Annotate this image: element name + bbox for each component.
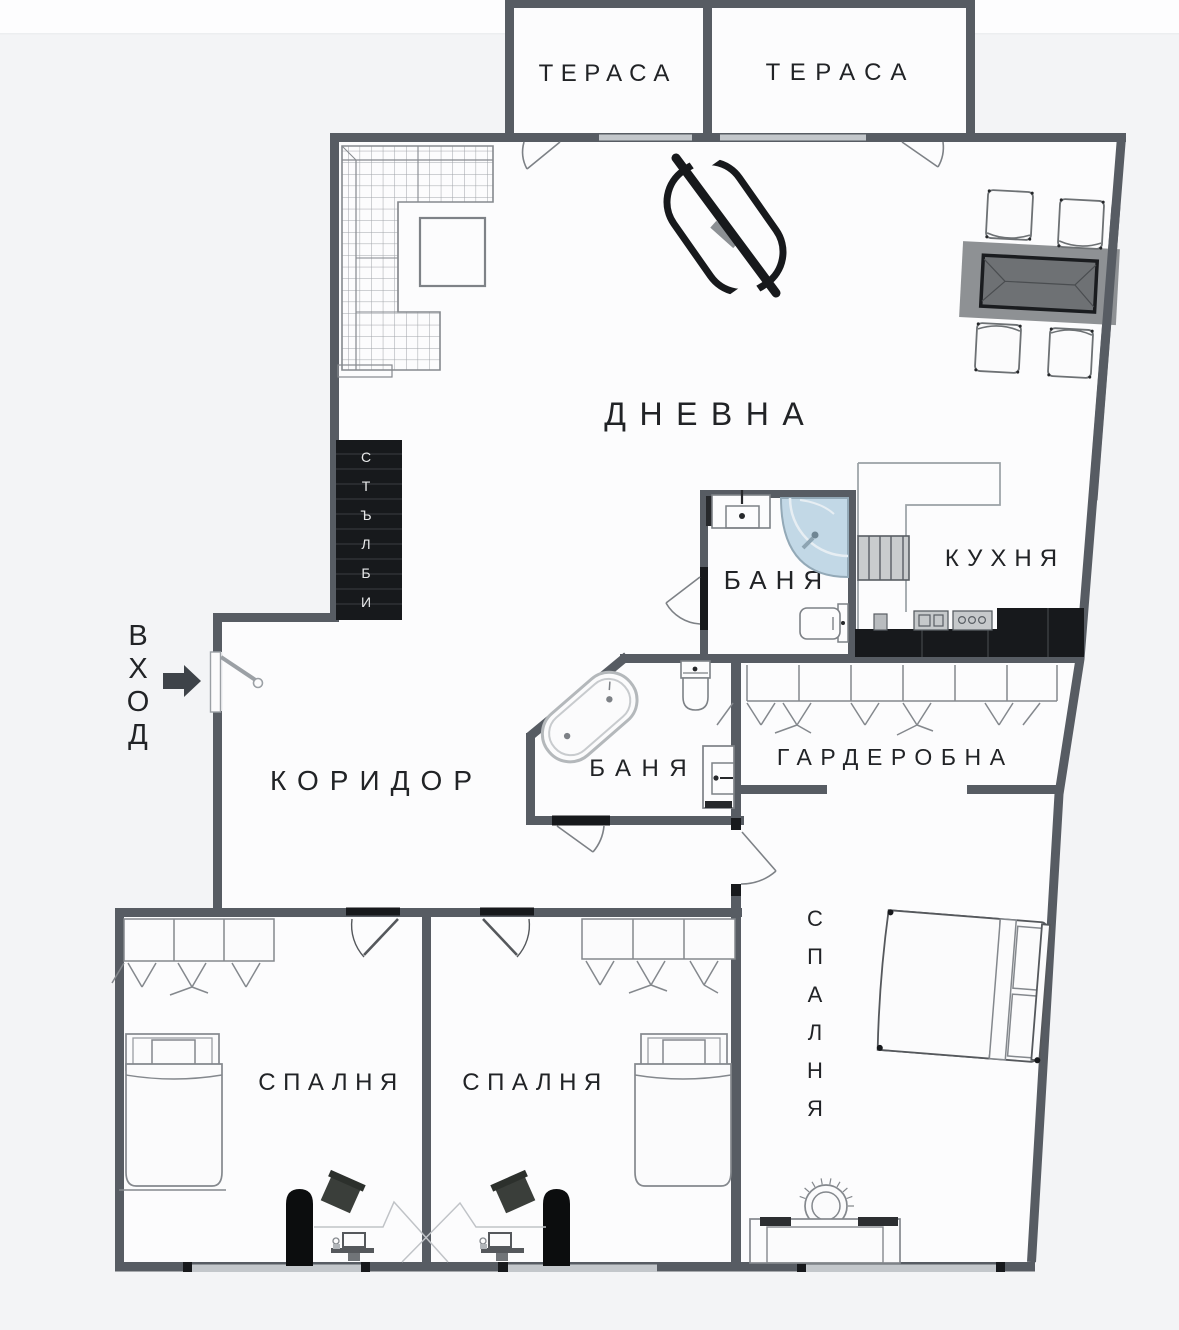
svg-text:С: С [807,906,823,931]
svg-text:ТЕРАСА: ТЕРАСА [766,59,916,86]
svg-text:Х: Х [128,653,147,685]
svg-text:Д: Д [128,719,148,751]
svg-text:ТЕРАСА: ТЕРАСА [539,60,677,87]
svg-text:Т: Т [362,478,371,494]
svg-text:Н: Н [807,1058,823,1083]
svg-text:Л: Л [808,1020,822,1045]
svg-text:СПАЛНЯ: СПАЛНЯ [258,1069,405,1096]
svg-text:БАНЯ: БАНЯ [589,755,697,782]
svg-text:И: И [361,594,371,610]
svg-text:ДНЕВНА: ДНЕВНА [604,396,817,432]
svg-text:С: С [361,449,371,465]
svg-text:О: О [127,686,150,718]
svg-text:Б: Б [361,565,370,581]
svg-text:КОРИДОР: КОРИДОР [270,765,483,796]
svg-text:ГАРДЕРОБНА: ГАРДЕРОБНА [777,744,1014,770]
svg-text:КУХНЯ: КУХНЯ [945,545,1065,572]
svg-text:СПАЛНЯ: СПАЛНЯ [462,1069,609,1096]
svg-text:П: П [807,944,823,969]
svg-text:В: В [128,620,147,652]
svg-text:Я: Я [807,1096,823,1121]
svg-text:Л: Л [361,536,370,552]
svg-text:Ъ: Ъ [360,507,371,523]
svg-text:А: А [808,982,823,1007]
